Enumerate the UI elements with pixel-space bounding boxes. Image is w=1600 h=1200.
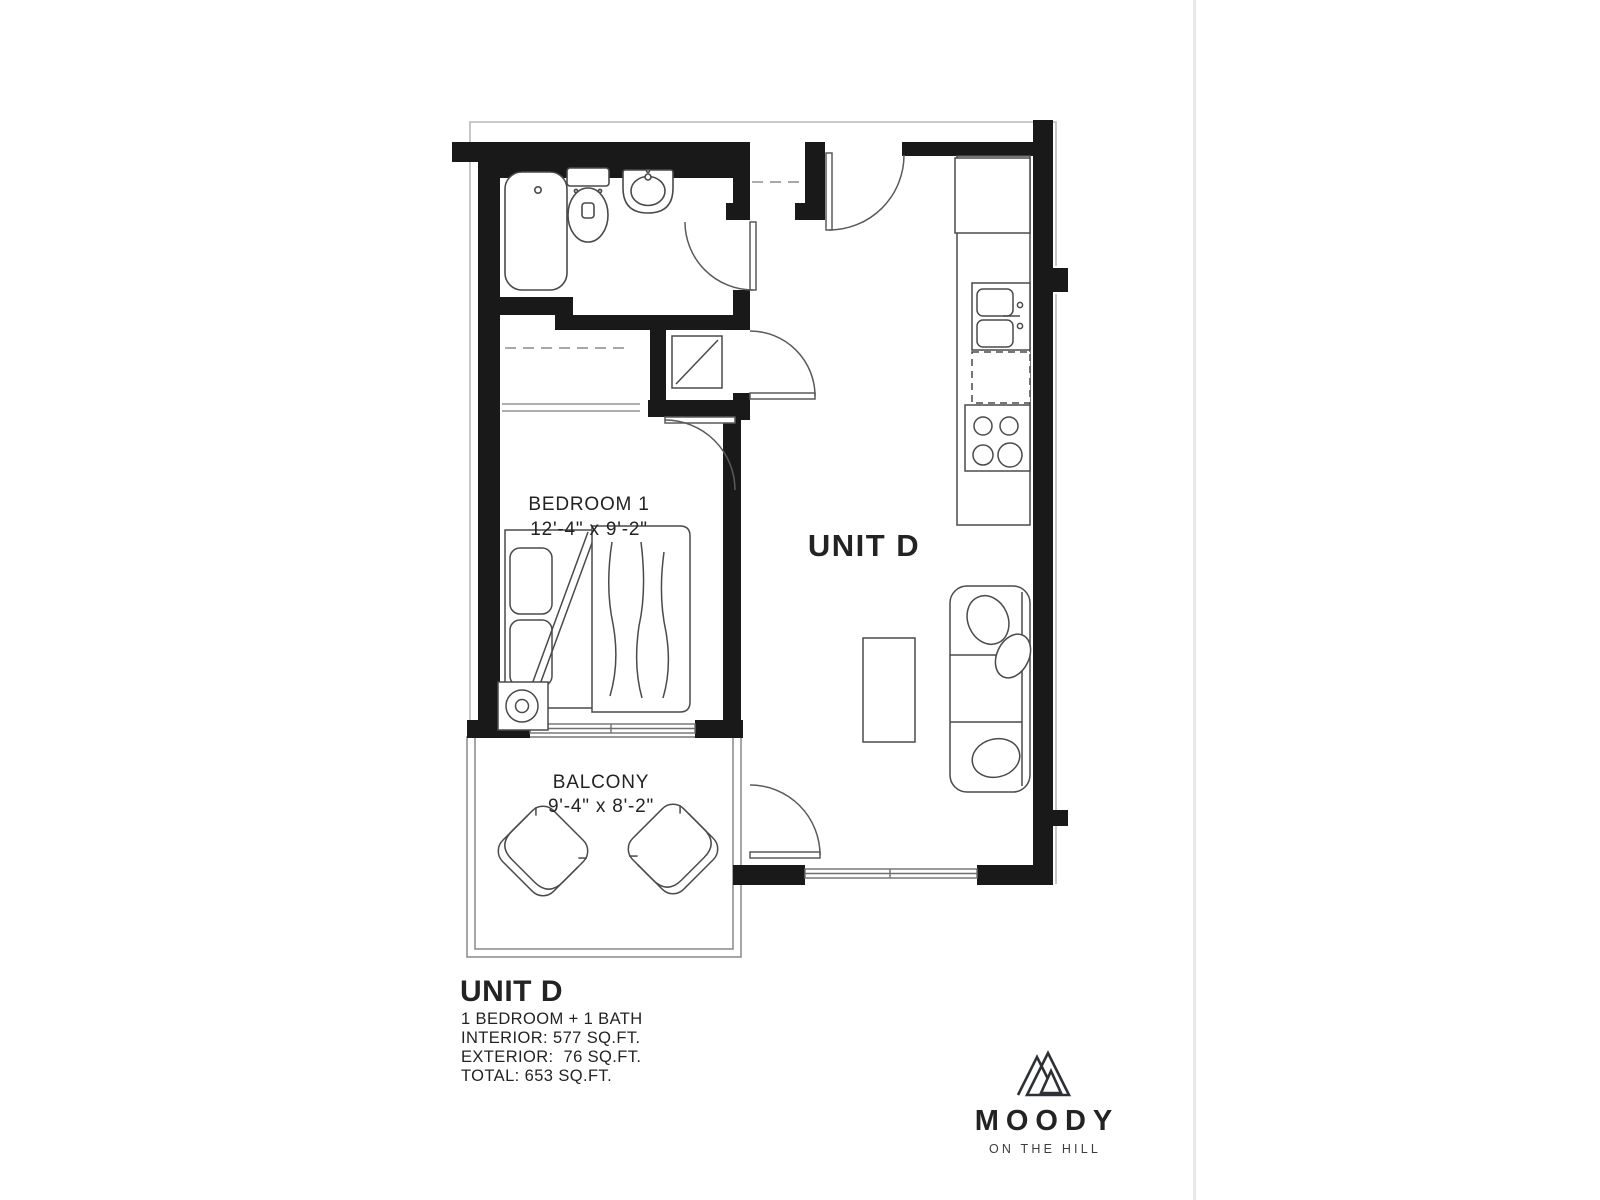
toilet [567,168,609,242]
info-panel: UNIT D 1 BEDROOM + 1 BATH INTERIOR: 577 … [460,975,643,1085]
info-title: UNIT D [460,975,563,1008]
dishwasher [972,352,1030,403]
kitchen-sink [972,283,1030,350]
doors [665,153,904,858]
balcony-door [750,785,820,858]
entry-door [826,153,904,230]
bedroom-furniture [498,526,690,730]
stove [965,405,1030,471]
bathroom-door [685,222,756,290]
coffee-table [863,638,915,742]
brand-tagline: ON THE HILL [989,1142,1101,1156]
pillow [510,548,552,614]
unit-label: UNIT D [808,528,920,563]
info-interior: INTERIOR: 577 SQ.FT. [461,1029,640,1047]
brand-name: MOODY [975,1105,1120,1137]
info-exterior: EXTERIOR: 76 SQ.FT. [461,1048,641,1066]
sofa [950,586,1037,792]
living-room-furniture [863,586,1037,792]
refrigerator [955,158,1030,233]
balcony-label: BALCONY [553,772,649,793]
bathtub [505,172,567,290]
balcony-dimensions: 9'-4" x 8'-2" [548,796,654,817]
closet-rod [502,404,640,411]
mountain-logo-icon [1018,1053,1069,1095]
washer-dryer [672,336,722,388]
bedroom-dimensions: 12'-4" x 9'-2" [530,519,648,540]
bathroom [505,168,673,290]
brand-block: MOODY ON THE HILL [975,1053,1120,1156]
floor-plan-page: BEDROOM 1 12'-4" x 9'-2" UNIT D BALCONY … [0,0,1600,1200]
page-divider [1193,0,1196,1200]
blanket [592,526,690,712]
closet-door [750,331,815,399]
nightstand [498,682,548,730]
kitchen [955,156,1030,525]
floor-plan-canvas: BEDROOM 1 12'-4" x 9'-2" UNIT D BALCONY … [0,0,1600,1200]
pillow [510,620,552,686]
info-total: TOTAL: 653 SQ.FT. [461,1067,612,1085]
bedroom-window [530,724,695,733]
living-room-window [805,869,977,878]
bathroom-sink [623,170,673,213]
info-bed-bath: 1 BEDROOM + 1 BATH [461,1010,643,1028]
bedroom-label: BEDROOM 1 [528,494,649,515]
